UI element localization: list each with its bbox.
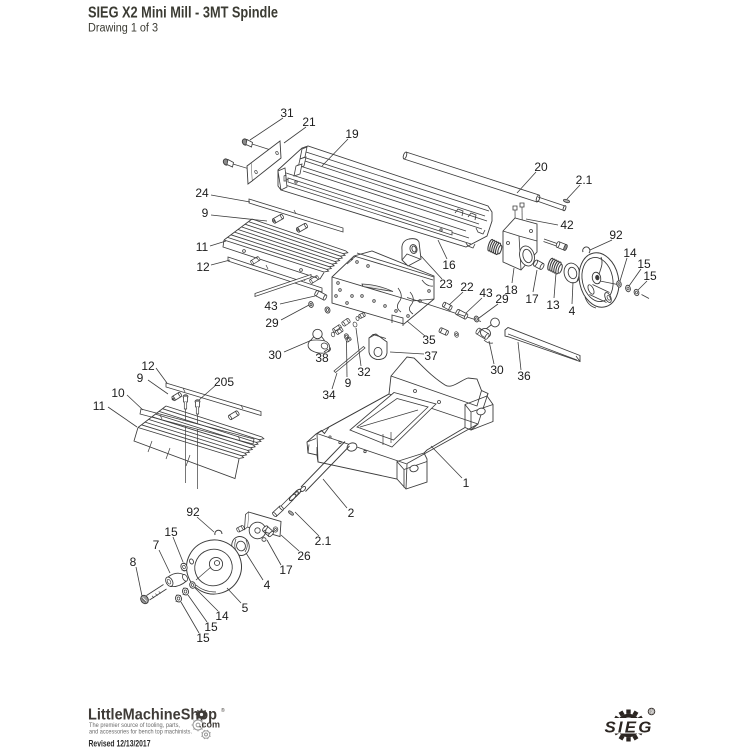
svg-text:32: 32 — [357, 365, 371, 379]
svg-text:30: 30 — [490, 363, 504, 377]
svg-text:19: 19 — [345, 127, 359, 141]
svg-text:15: 15 — [196, 631, 210, 645]
svg-text:4: 4 — [569, 304, 576, 318]
svg-text:37: 37 — [424, 349, 438, 363]
svg-text:43: 43 — [479, 286, 493, 300]
svg-text:35: 35 — [422, 333, 436, 347]
svg-text:22: 22 — [460, 280, 474, 294]
svg-text:23: 23 — [439, 277, 453, 291]
svg-text:Drawing 1 of 3: Drawing 1 of 3 — [88, 23, 158, 35]
svg-text:17: 17 — [279, 563, 293, 577]
svg-text:®: ® — [649, 709, 654, 716]
svg-text:1: 1 — [463, 476, 470, 490]
svg-text:9: 9 — [202, 206, 209, 220]
svg-text:29: 29 — [495, 292, 509, 306]
svg-text:4: 4 — [264, 578, 271, 592]
svg-text:8: 8 — [130, 555, 137, 569]
svg-text:92: 92 — [186, 505, 200, 519]
svg-text:38: 38 — [315, 351, 329, 365]
svg-text:13: 13 — [546, 298, 560, 312]
svg-text:92: 92 — [609, 228, 623, 242]
svg-text:21: 21 — [302, 115, 316, 129]
svg-text:15: 15 — [643, 269, 657, 283]
svg-text:®: ® — [221, 707, 225, 714]
svg-text:42: 42 — [560, 218, 574, 232]
svg-text:5: 5 — [242, 601, 249, 615]
svg-text:11: 11 — [93, 399, 106, 413]
svg-text:43: 43 — [264, 299, 278, 313]
svg-text:14: 14 — [623, 246, 637, 260]
svg-text:9: 9 — [345, 376, 352, 390]
svg-text:36: 36 — [517, 369, 531, 383]
svg-text:29: 29 — [265, 316, 279, 330]
svg-text:2.1: 2.1 — [576, 173, 593, 187]
svg-text:26: 26 — [297, 549, 311, 563]
svg-text:30: 30 — [268, 348, 282, 362]
svg-text:10: 10 — [111, 386, 125, 400]
svg-text:12: 12 — [196, 260, 210, 274]
svg-text:SIEG: SIEG — [605, 720, 654, 737]
svg-text:and accessories for bench top: and accessories for bench top machinists… — [89, 729, 192, 736]
svg-text:24: 24 — [195, 186, 209, 200]
svg-text:16: 16 — [442, 258, 456, 272]
svg-text:12: 12 — [141, 359, 155, 373]
svg-text:17: 17 — [525, 292, 539, 306]
svg-text:34: 34 — [322, 388, 336, 402]
svg-text:2.1: 2.1 — [315, 534, 332, 548]
svg-text:Revised 12/13/2017: Revised 12/13/2017 — [89, 739, 151, 749]
svg-text:9: 9 — [137, 371, 144, 385]
svg-text:205: 205 — [214, 375, 234, 389]
svg-text:7: 7 — [153, 538, 160, 552]
svg-text:20: 20 — [534, 160, 548, 174]
svg-text:15: 15 — [164, 525, 178, 539]
svg-text:11: 11 — [196, 240, 209, 254]
svg-text:SIEG X2 Mini Mill - 3MT Spindl: SIEG X2 Mini Mill - 3MT Spindle — [88, 5, 278, 22]
svg-text:31: 31 — [280, 106, 294, 120]
svg-text:2: 2 — [348, 506, 355, 520]
